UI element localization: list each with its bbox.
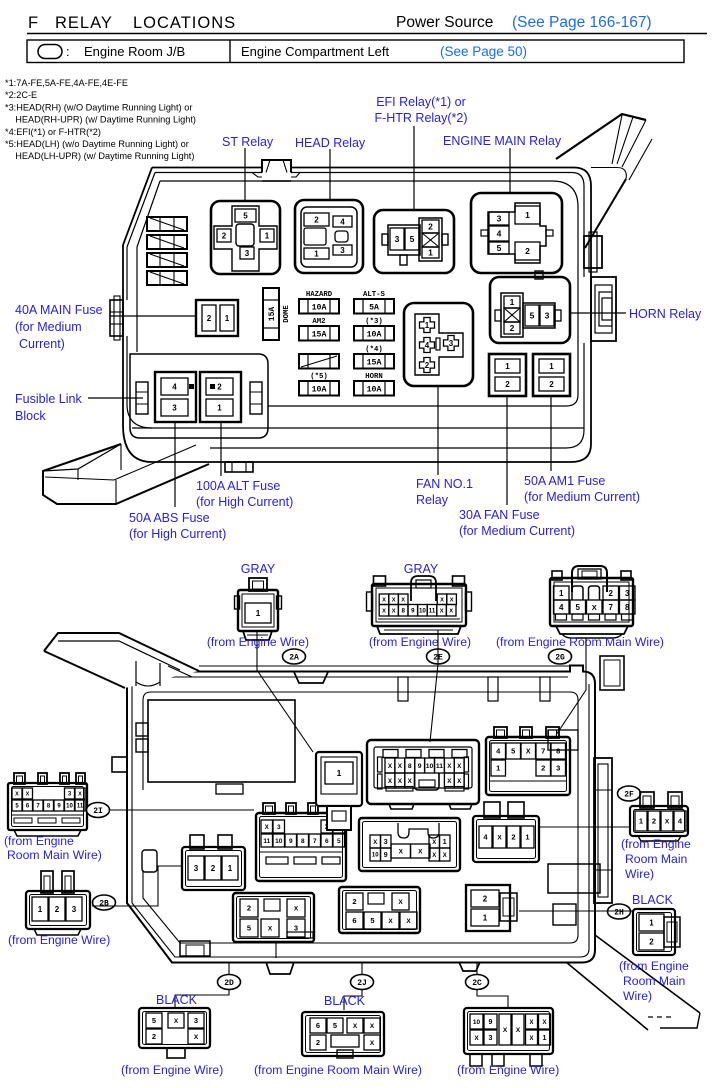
svg-text:1: 1 <box>443 839 447 846</box>
svg-text:15A: 15A <box>367 358 382 367</box>
svg-text:5: 5 <box>243 211 248 220</box>
svg-text:HEAD(LH-UPR) (w/ Daytime Runni: HEAD(LH-UPR) (w/ Daytime Running Light) <box>5 151 194 161</box>
svg-text:3: 3 <box>194 1016 198 1025</box>
svg-text:2D: 2D <box>224 979 234 988</box>
svg-text:(from Engine Wire): (from Engine Wire) <box>457 1063 559 1077</box>
svg-text:1: 1 <box>217 403 222 412</box>
svg-text:Block: Block <box>15 409 46 423</box>
svg-text:2: 2 <box>649 937 654 946</box>
svg-text:11: 11 <box>77 804 84 810</box>
svg-text:50A ABS Fuse: 50A ABS Fuse <box>129 511 210 525</box>
svg-text:AM2: AM2 <box>312 318 325 326</box>
svg-text:X: X <box>370 1040 375 1047</box>
svg-text:X: X <box>294 906 299 913</box>
svg-text:2: 2 <box>316 1038 320 1047</box>
svg-text:(from Engine Room Main Wire): (from Engine Room Main Wire) <box>496 635 664 649</box>
svg-text:F: F <box>28 14 39 32</box>
svg-text:4: 4 <box>172 382 177 391</box>
svg-text:5: 5 <box>511 747 515 756</box>
svg-text:8: 8 <box>556 747 560 756</box>
svg-text:7: 7 <box>609 603 614 612</box>
svg-text:1: 1 <box>256 608 261 618</box>
svg-text:2: 2 <box>652 817 656 826</box>
svg-text:X: X <box>449 608 453 614</box>
svg-text:X: X <box>388 918 393 925</box>
svg-text:Room Main: Room Main <box>625 852 687 866</box>
svg-text:9: 9 <box>489 1019 493 1026</box>
svg-text:11: 11 <box>436 763 443 770</box>
svg-text:ALT-S: ALT-S <box>363 291 386 299</box>
svg-text:F-HTR Relay(*2): F-HTR Relay(*2) <box>374 111 467 125</box>
svg-text:X: X <box>174 1018 179 1025</box>
svg-text:HORN Relay: HORN Relay <box>629 307 702 321</box>
svg-text:(for Medium Current): (for Medium Current) <box>459 524 575 538</box>
svg-text:X: X <box>382 597 386 603</box>
svg-text:50A AM1 Fuse: 50A AM1 Fuse <box>524 474 605 488</box>
svg-text:100A ALT Fuse: 100A ALT Fuse <box>196 479 280 493</box>
svg-text:2: 2 <box>247 904 251 913</box>
svg-text:EFI Relay(*1) or: EFI Relay(*1) or <box>376 95 466 109</box>
svg-text:3: 3 <box>395 234 400 244</box>
svg-text:5: 5 <box>410 234 415 244</box>
svg-text:10A: 10A <box>367 330 382 339</box>
svg-text:X: X <box>265 825 269 831</box>
svg-text:(*5): (*5) <box>310 373 328 381</box>
svg-text:3: 3 <box>194 864 199 873</box>
svg-text:X: X <box>450 597 454 603</box>
svg-text:X: X <box>529 1036 533 1042</box>
svg-text:(from Engine: (from Engine <box>621 837 691 851</box>
svg-text:*4:EFI(*1) or F-HTR(*2): *4:EFI(*1) or F-HTR(*2) <box>5 127 101 137</box>
svg-text:Current): Current) <box>19 337 65 351</box>
svg-text:15A: 15A <box>268 307 277 322</box>
svg-text:1: 1 <box>505 362 510 371</box>
svg-text:2: 2 <box>505 380 510 389</box>
svg-text:X: X <box>373 840 377 846</box>
svg-text:Room Main Wire): Room Main Wire) <box>7 848 102 862</box>
svg-text:Power Source: Power Source <box>396 14 493 31</box>
svg-text:Wire): Wire) <box>625 867 654 881</box>
svg-text:(from Engine Wire): (from Engine Wire) <box>8 933 110 947</box>
svg-text:HAZARD: HAZARD <box>306 291 333 299</box>
svg-text:*1:7A-FE,5A-FE,4A-FE,4E-FE: *1:7A-FE,5A-FE,4A-FE,4E-FE <box>5 78 128 88</box>
svg-text:BLACK: BLACK <box>156 993 198 1007</box>
svg-text::: : <box>66 44 70 59</box>
svg-text:2H: 2H <box>614 908 624 917</box>
svg-text:3: 3 <box>72 905 77 914</box>
svg-text:BLACK: BLACK <box>632 893 674 907</box>
svg-text:6: 6 <box>352 916 356 925</box>
svg-text:5: 5 <box>530 311 535 321</box>
svg-text:(for Medium: (for Medium <box>15 320 82 334</box>
svg-text:3: 3 <box>384 839 388 846</box>
svg-text:1: 1 <box>228 864 233 873</box>
svg-text:2: 2 <box>222 231 227 240</box>
svg-text:BLACK: BLACK <box>324 994 366 1008</box>
svg-text:X: X <box>440 608 444 614</box>
svg-text:X: X <box>529 1020 533 1026</box>
svg-text:3: 3 <box>556 764 560 773</box>
svg-text:X: X <box>399 849 404 856</box>
svg-text:8: 8 <box>625 603 630 612</box>
svg-text:10: 10 <box>275 838 283 845</box>
svg-text:3: 3 <box>545 311 550 321</box>
svg-text:1: 1 <box>543 1035 547 1042</box>
svg-text:X: X <box>516 1027 521 1034</box>
svg-text:2: 2 <box>55 905 60 914</box>
svg-text:9: 9 <box>411 607 415 614</box>
svg-text:X: X <box>440 597 444 603</box>
svg-text:7: 7 <box>313 838 317 845</box>
svg-text:3: 3 <box>625 589 630 598</box>
svg-text:10: 10 <box>473 1019 481 1026</box>
svg-text:X: X <box>268 926 273 933</box>
svg-text:5: 5 <box>337 838 341 845</box>
svg-text:1: 1 <box>549 362 554 371</box>
svg-text:7: 7 <box>541 747 545 756</box>
svg-text:2: 2 <box>352 897 356 906</box>
svg-text:2: 2 <box>211 864 216 873</box>
svg-text:2: 2 <box>541 764 545 773</box>
svg-text:4: 4 <box>425 341 430 350</box>
svg-text:X: X <box>592 603 597 612</box>
svg-text:3: 3 <box>294 924 298 933</box>
svg-text:X: X <box>503 1027 508 1034</box>
svg-text:(for High Current): (for High Current) <box>196 495 293 509</box>
svg-text:9: 9 <box>289 838 293 845</box>
svg-text:8: 8 <box>408 763 412 770</box>
svg-text:10: 10 <box>419 607 426 614</box>
svg-text:(from Engine: (from Engine <box>619 959 689 973</box>
svg-text:1: 1 <box>559 589 564 598</box>
svg-text:2: 2 <box>609 589 614 598</box>
svg-text:10A: 10A <box>367 385 382 394</box>
svg-text:*3:HEAD(RH) (w/O Daytime Runni: *3:HEAD(RH) (w/O Daytime Running Light) … <box>5 102 192 112</box>
svg-text:10: 10 <box>372 853 379 859</box>
svg-text:2F: 2F <box>624 790 634 799</box>
svg-text:3: 3 <box>497 214 502 224</box>
svg-text:GRAY: GRAY <box>404 562 439 576</box>
svg-text:(from Engine Wire): (from Engine Wire) <box>121 1063 223 1077</box>
svg-text:2J: 2J <box>357 979 367 988</box>
svg-text:2: 2 <box>511 833 515 842</box>
svg-text:1: 1 <box>337 768 342 778</box>
svg-text:X: X <box>392 597 396 603</box>
svg-text:5A: 5A <box>369 303 379 312</box>
svg-text:2: 2 <box>217 382 222 391</box>
svg-text:X: X <box>15 792 19 798</box>
svg-text:1: 1 <box>38 905 43 914</box>
svg-text:30A FAN Fuse: 30A FAN Fuse <box>459 508 540 522</box>
svg-text:(from Engine Room Main Wire): (from Engine Room Main Wire) <box>254 1063 422 1077</box>
svg-text:Engine Room J/B: Engine Room J/B <box>84 44 185 59</box>
svg-text:2C: 2C <box>472 979 482 988</box>
svg-text:1: 1 <box>525 210 530 220</box>
svg-text:*5:HEAD(LH) (w/o Daytime Runni: *5:HEAD(LH) (w/o Daytime Running Light) … <box>5 139 189 149</box>
svg-text:X: X <box>497 835 502 842</box>
svg-text:5: 5 <box>333 1021 337 1030</box>
svg-text:4: 4 <box>559 603 564 612</box>
svg-text:10A: 10A <box>312 303 327 312</box>
svg-text:ENGINE MAIN Relay: ENGINE MAIN Relay <box>443 134 562 148</box>
svg-text:9: 9 <box>384 852 388 859</box>
svg-text:(See Page 166-167): (See Page 166-167) <box>512 14 652 31</box>
svg-text:3: 3 <box>277 824 281 831</box>
svg-text:X: X <box>406 918 411 925</box>
svg-text:Room Main: Room Main <box>623 974 685 988</box>
svg-text:10: 10 <box>66 804 73 810</box>
svg-text:2: 2 <box>425 361 430 370</box>
svg-text:(See Page 50): (See Page 50) <box>440 44 527 59</box>
svg-text:2I: 2I <box>93 807 103 816</box>
svg-text:11: 11 <box>429 607 436 614</box>
svg-text:X: X <box>370 1023 375 1030</box>
svg-text:1: 1 <box>425 321 430 330</box>
svg-text:X: X <box>398 899 403 906</box>
svg-text:Fusible Link: Fusible Link <box>15 392 82 406</box>
svg-text:2B: 2B <box>99 899 109 908</box>
svg-text:2: 2 <box>483 894 488 903</box>
svg-text:DOME: DOME <box>283 305 291 323</box>
svg-text:(for High Current): (for High Current) <box>129 527 226 541</box>
svg-text:X: X <box>443 853 447 859</box>
svg-text:10A: 10A <box>312 385 327 394</box>
svg-text:5: 5 <box>247 924 251 933</box>
svg-text:(*4): (*4) <box>365 346 383 354</box>
svg-text:LOCATIONS: LOCATIONS <box>133 14 236 32</box>
svg-text:RELAY: RELAY <box>55 14 113 32</box>
svg-text:1: 1 <box>510 297 515 307</box>
svg-text:3: 3 <box>449 339 454 348</box>
svg-text:2: 2 <box>314 215 319 224</box>
svg-text:X: X <box>382 608 386 614</box>
svg-text:X: X <box>418 849 423 856</box>
svg-text:X: X <box>474 1035 479 1042</box>
svg-text:1: 1 <box>483 913 488 922</box>
svg-text:11: 11 <box>263 838 270 845</box>
svg-text:2: 2 <box>428 222 433 232</box>
svg-text:4: 4 <box>340 217 345 226</box>
svg-text:X: X <box>26 792 30 798</box>
svg-text:HEAD Relay: HEAD Relay <box>295 136 366 150</box>
svg-text:1: 1 <box>428 248 433 258</box>
svg-text:3: 3 <box>245 249 250 258</box>
svg-text:X: X <box>401 597 405 603</box>
svg-text:X: X <box>526 749 531 756</box>
svg-text:X: X <box>665 819 670 826</box>
svg-text:1: 1 <box>265 231 270 240</box>
svg-text:(from Engine Wire): (from Engine Wire) <box>207 635 309 649</box>
svg-text:1: 1 <box>639 817 643 826</box>
svg-text:2A: 2A <box>289 653 299 662</box>
svg-text:HEAD(RH-UPR) (w/ Daytime Runni: HEAD(RH-UPR) (w/ Daytime Running Light) <box>5 115 196 125</box>
svg-text:2: 2 <box>152 1032 156 1041</box>
svg-text:(for Medium Current): (for Medium Current) <box>524 490 640 504</box>
svg-text:2: 2 <box>207 314 212 323</box>
svg-text:(from Engine: (from Engine <box>4 834 74 848</box>
svg-text:2G: 2G <box>555 653 565 662</box>
svg-text:9: 9 <box>418 763 422 770</box>
svg-text:3: 3 <box>172 403 177 412</box>
svg-text:(from Engine Wire): (from Engine Wire) <box>369 635 471 649</box>
svg-text:Wire): Wire) <box>623 989 652 1003</box>
svg-text:2: 2 <box>525 246 530 256</box>
svg-text:1: 1 <box>496 764 500 773</box>
svg-text:5: 5 <box>497 243 502 253</box>
svg-text:1: 1 <box>525 833 529 842</box>
svg-text:1: 1 <box>649 918 654 927</box>
svg-text:5: 5 <box>576 603 581 612</box>
svg-text:X: X <box>194 1034 199 1041</box>
svg-text:X: X <box>78 792 82 798</box>
svg-text:4: 4 <box>497 229 502 239</box>
svg-text:2: 2 <box>510 323 515 333</box>
svg-text:6: 6 <box>325 838 329 845</box>
svg-text:X: X <box>432 853 436 859</box>
svg-text:(*3): (*3) <box>365 318 383 326</box>
svg-text:15A: 15A <box>312 330 327 339</box>
svg-text:5: 5 <box>152 1016 156 1025</box>
svg-text:Relay: Relay <box>416 493 449 507</box>
svg-text:3: 3 <box>340 246 345 255</box>
svg-text:X: X <box>432 840 436 846</box>
svg-text:1: 1 <box>225 314 230 323</box>
svg-text:8: 8 <box>301 838 305 845</box>
svg-text:X: X <box>392 608 396 614</box>
svg-text:40A MAIN Fuse: 40A MAIN Fuse <box>15 303 103 317</box>
svg-text:Engine Compartment Left: Engine Compartment Left <box>241 44 390 59</box>
svg-text:X: X <box>353 1023 358 1030</box>
svg-text:X: X <box>542 1020 546 1026</box>
svg-text:6: 6 <box>316 1021 320 1030</box>
svg-text:1: 1 <box>314 249 319 258</box>
svg-text:ST Relay: ST Relay <box>222 135 274 149</box>
svg-text:FAN NO.1: FAN NO.1 <box>416 477 473 491</box>
svg-text:HORN: HORN <box>365 373 383 381</box>
svg-text:5: 5 <box>370 916 374 925</box>
svg-text:3: 3 <box>489 1035 493 1042</box>
svg-text:2: 2 <box>549 380 554 389</box>
svg-text:8: 8 <box>401 607 405 614</box>
svg-text:*2:2C-E: *2:2C-E <box>5 90 37 100</box>
svg-text:GRAY: GRAY <box>241 562 276 576</box>
svg-text:10: 10 <box>426 763 434 770</box>
